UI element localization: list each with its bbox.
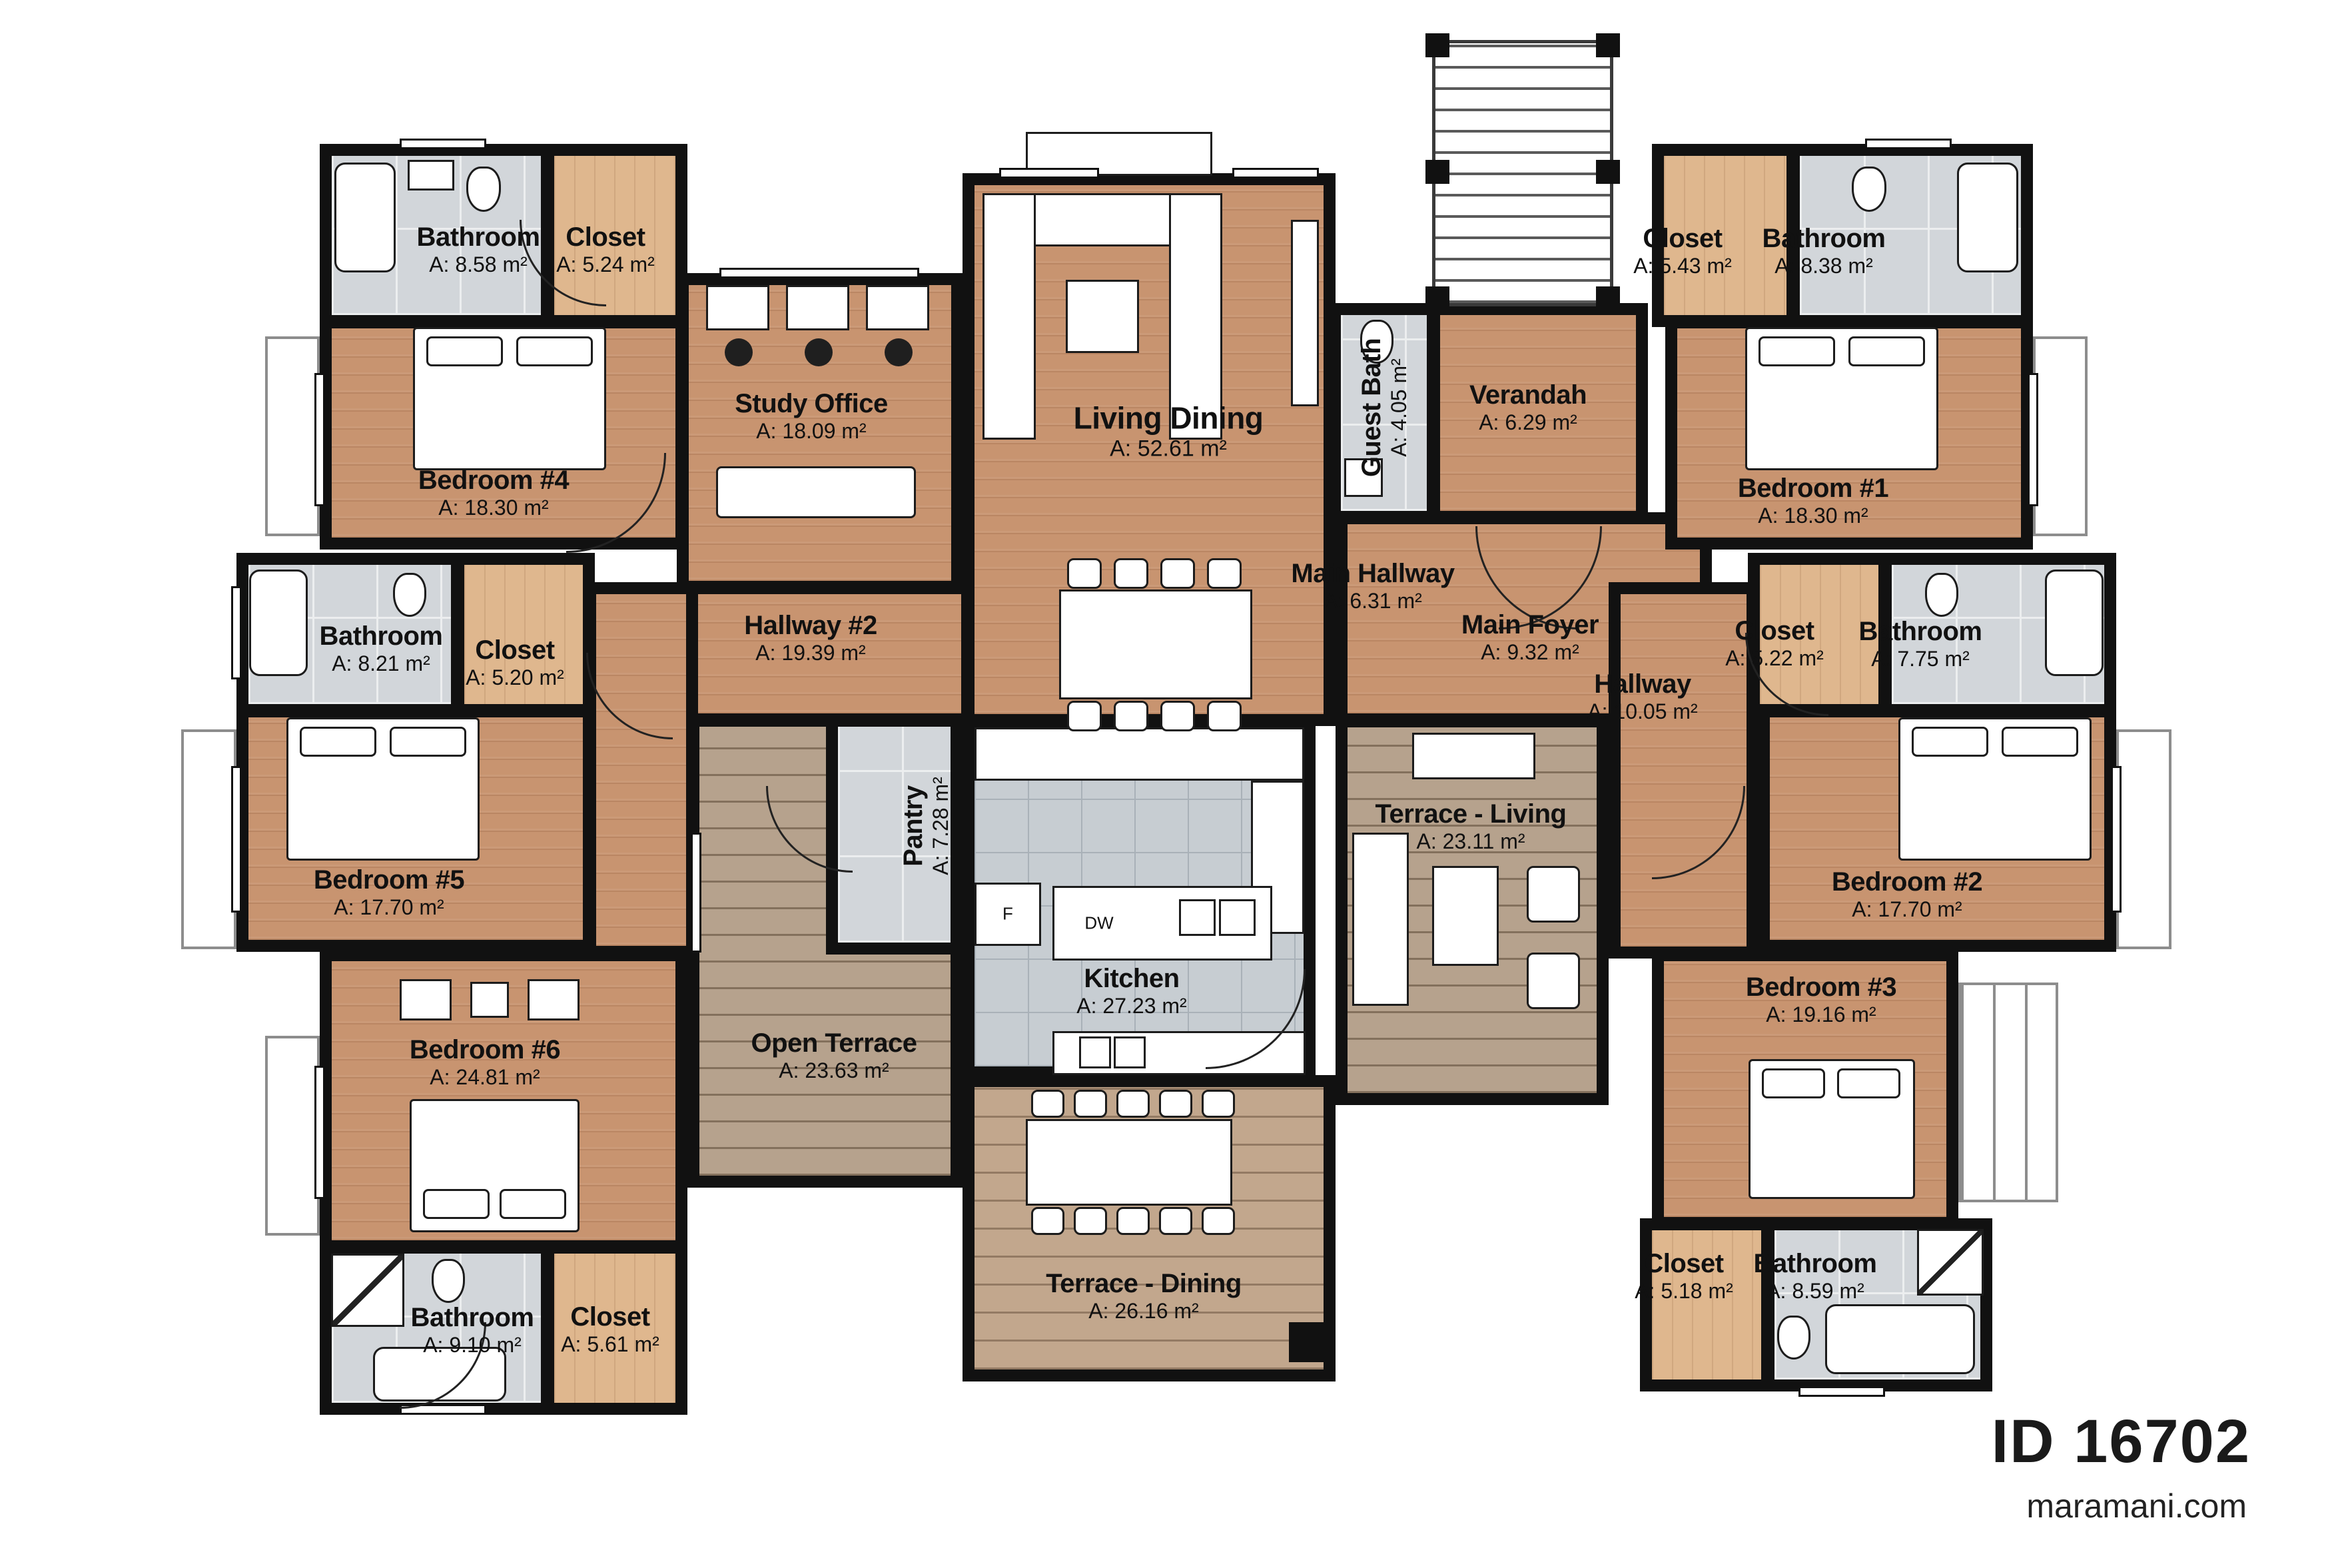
dining-chair-icon — [1207, 701, 1242, 731]
room-label-bathroom-br: Bathroom A: 8.59 m² — [1754, 1249, 1877, 1304]
room-label-terrace-dining: Terrace - Dining A: 26.16 m² — [1046, 1269, 1242, 1324]
room-label-main-foyer: Main Foyer A: 9.32 m² — [1461, 610, 1599, 665]
pergola-post — [1425, 160, 1449, 184]
bed-pillow-icon — [390, 727, 466, 757]
bed-pillow-icon — [1912, 727, 1988, 757]
window — [1232, 168, 1319, 179]
window — [719, 268, 919, 278]
dining-chair-icon — [1207, 558, 1242, 589]
pergola-post — [1425, 33, 1449, 57]
room-label-bedroom-2: Bedroom #2 A: 17.70 m² — [1832, 867, 1982, 922]
room-label-bathroom-tr: Bathroom A: 8.38 m² — [1763, 224, 1886, 278]
sofa-sectional-icon — [982, 193, 1036, 440]
dining-table-icon — [1059, 589, 1252, 699]
sink-icon — [1079, 1036, 1111, 1068]
window — [314, 373, 325, 506]
sink-icon — [1114, 1036, 1146, 1068]
window-bay — [181, 729, 236, 949]
room-closet-br-floor — [1640, 1218, 1773, 1391]
office-chair-icon — [725, 338, 753, 366]
desk-icon — [866, 285, 929, 330]
bed-pillow-icon — [423, 1189, 490, 1219]
bed-pillow-icon — [2002, 727, 2078, 757]
room-label-terrace-living: Terrace - Living A: 23.11 m² — [1375, 799, 1567, 854]
window — [2028, 373, 2038, 506]
dining-chair-icon — [1067, 701, 1102, 731]
window — [999, 168, 1099, 179]
outdoor-chair-icon — [1527, 953, 1580, 1009]
pergola-trellis — [1432, 40, 1613, 306]
sink-icon — [1179, 899, 1216, 936]
room-label-bedroom-4: Bedroom #4 A: 18.30 m² — [418, 466, 569, 520]
website-url: maramani.com — [2026, 1487, 2247, 1525]
room-label-closet-tr: Closet A: 5.43 m² — [1633, 224, 1732, 278]
bed-pillow-icon — [1837, 1068, 1900, 1098]
coffee-table-icon — [1066, 280, 1139, 353]
room-label-bathroom-tl: Bathroom A: 8.58 m² — [417, 222, 540, 277]
outdoor-chair-icon — [1116, 1090, 1150, 1118]
room-label-bathroom-mr: Bathroom A: 7.75 m² — [1859, 617, 1982, 671]
room-label-guest-bath: Guest Bath A: 4.05 m² — [1357, 338, 1411, 477]
room-label-bedroom-3: Bedroom #3 A: 19.16 m² — [1746, 973, 1896, 1027]
fridge-label: F — [1002, 904, 1013, 925]
pergola-post — [1596, 160, 1620, 184]
room-label-pantry: Pantry A: 7.28 m² — [899, 777, 953, 875]
room-label-bedroom-6: Bedroom #6 A: 24.81 m² — [410, 1035, 560, 1090]
bed-pillow-icon — [1848, 336, 1925, 366]
bathtub-icon — [1825, 1304, 1975, 1374]
room-label-bathroom-ml: Bathroom A: 8.21 m² — [320, 621, 443, 676]
bathtub-icon — [249, 570, 308, 676]
window — [1798, 1386, 1885, 1397]
dining-chair-icon — [1160, 558, 1195, 589]
bed-pillow-icon — [1759, 336, 1835, 366]
room-label-bathroom-bl: Bathroom A: 9.10 m² — [411, 1303, 534, 1358]
pergola-post — [1425, 286, 1449, 310]
bathtub-icon — [2045, 570, 2104, 676]
room-closet-ml-floor — [452, 553, 595, 716]
window — [231, 766, 242, 913]
plan-id: ID 16702 — [1992, 1407, 2251, 1477]
window — [691, 833, 701, 953]
shower-icon — [1917, 1229, 1984, 1296]
window — [314, 1066, 325, 1199]
bed-pillow-icon — [300, 727, 376, 757]
dishwasher-label: DW — [1084, 913, 1113, 934]
sofa-icon — [716, 466, 916, 518]
dining-chair-icon — [1114, 701, 1148, 731]
window — [1865, 139, 1952, 149]
kitchen-counter-icon — [975, 727, 1304, 781]
outdoor-sofa-icon — [1412, 733, 1535, 779]
room-label-main-hallway: Main Hallway A: 6.31 m² — [1291, 559, 1454, 613]
room-label-hallway: Hallway A: 10.05 m² — [1587, 669, 1697, 724]
toilet-icon — [393, 573, 426, 617]
toilet-icon — [1852, 167, 1886, 212]
outdoor-chair-icon — [1116, 1207, 1150, 1235]
outdoor-dining-table-icon — [1026, 1119, 1232, 1206]
room-label-open-terrace: Open Terrace A: 23.63 m² — [751, 1028, 917, 1083]
room-label-bedroom-5: Bedroom #5 A: 17.70 m² — [314, 865, 464, 920]
dining-chair-icon — [1067, 558, 1102, 589]
tv-console-icon — [1291, 220, 1319, 406]
room-label-closet-ml: Closet A: 5.20 m² — [466, 635, 564, 690]
bathtub-icon — [1957, 163, 2018, 272]
window — [231, 586, 242, 679]
window-bay — [265, 336, 320, 536]
outdoor-chair-icon — [1202, 1090, 1235, 1118]
room-label-verandah: Verandah A: 6.29 m² — [1469, 380, 1587, 435]
toilet-icon — [1925, 573, 1958, 617]
window-bay — [1958, 982, 2058, 1202]
desk-icon — [706, 285, 769, 330]
room-label-bedroom-1: Bedroom #1 A: 18.30 m² — [1738, 474, 1888, 528]
outdoor-chair-icon — [1074, 1090, 1107, 1118]
room-label-closet-br: Closet A: 5.18 m² — [1635, 1249, 1733, 1304]
toilet-icon — [1777, 1316, 1810, 1360]
desk-icon — [786, 285, 849, 330]
bed-pillow-icon — [426, 336, 503, 366]
room-hallway-2-corridor — [584, 582, 698, 958]
window-bay — [2033, 336, 2088, 536]
bed-pillow-icon — [1762, 1068, 1825, 1098]
room-label-closet-tl: Closet A: 5.24 m² — [556, 222, 655, 277]
coffee-table-icon — [1432, 866, 1499, 966]
terrace-step-icon — [1289, 1322, 1329, 1362]
window — [400, 139, 486, 149]
window — [2111, 766, 2122, 913]
dresser-icon — [470, 982, 509, 1018]
window-bay — [2116, 729, 2171, 949]
office-chair-icon — [885, 338, 913, 366]
room-label-closet-bl: Closet A: 5.61 m² — [561, 1302, 659, 1357]
room-label-hallway-2: Hallway #2 A: 19.39 m² — [744, 611, 877, 665]
bed-pillow-icon — [500, 1189, 566, 1219]
bathtub-icon — [334, 163, 396, 272]
outdoor-chair-icon — [1527, 866, 1580, 923]
window-bay — [265, 1036, 320, 1236]
room-label-kitchen: Kitchen A: 27.23 m² — [1076, 964, 1186, 1018]
room-label-study-office: Study Office A: 18.09 m² — [735, 389, 888, 444]
outdoor-chair-icon — [1159, 1207, 1192, 1235]
pergola-post — [1596, 33, 1620, 57]
dresser-icon — [528, 979, 580, 1020]
dresser-icon — [400, 979, 452, 1020]
floor-plan: F DW Bathroom A: 8.58 m² Closet A: 5. — [0, 0, 2352, 1568]
outdoor-chair-icon — [1031, 1207, 1064, 1235]
outdoor-sofa-icon — [1352, 833, 1409, 1006]
toilet-icon — [466, 167, 501, 212]
room-label-closet-mr: Closet A: 5.22 m² — [1725, 616, 1824, 671]
outdoor-chair-icon — [1159, 1090, 1192, 1118]
toilet-icon — [432, 1259, 465, 1303]
sink-icon — [1219, 899, 1256, 936]
dining-chair-icon — [1114, 558, 1148, 589]
outdoor-chair-icon — [1031, 1090, 1064, 1118]
outdoor-chair-icon — [1202, 1207, 1235, 1235]
bathroom-sink-icon — [408, 160, 454, 191]
outdoor-chair-icon — [1074, 1207, 1107, 1235]
dining-chair-icon — [1160, 701, 1195, 731]
office-chair-icon — [805, 338, 833, 366]
pergola-post — [1596, 286, 1620, 310]
bed-pillow-icon — [516, 336, 593, 366]
shower-icon — [331, 1254, 404, 1327]
room-label-living-dining: Living Dining A: 52.61 m² — [1074, 402, 1264, 462]
